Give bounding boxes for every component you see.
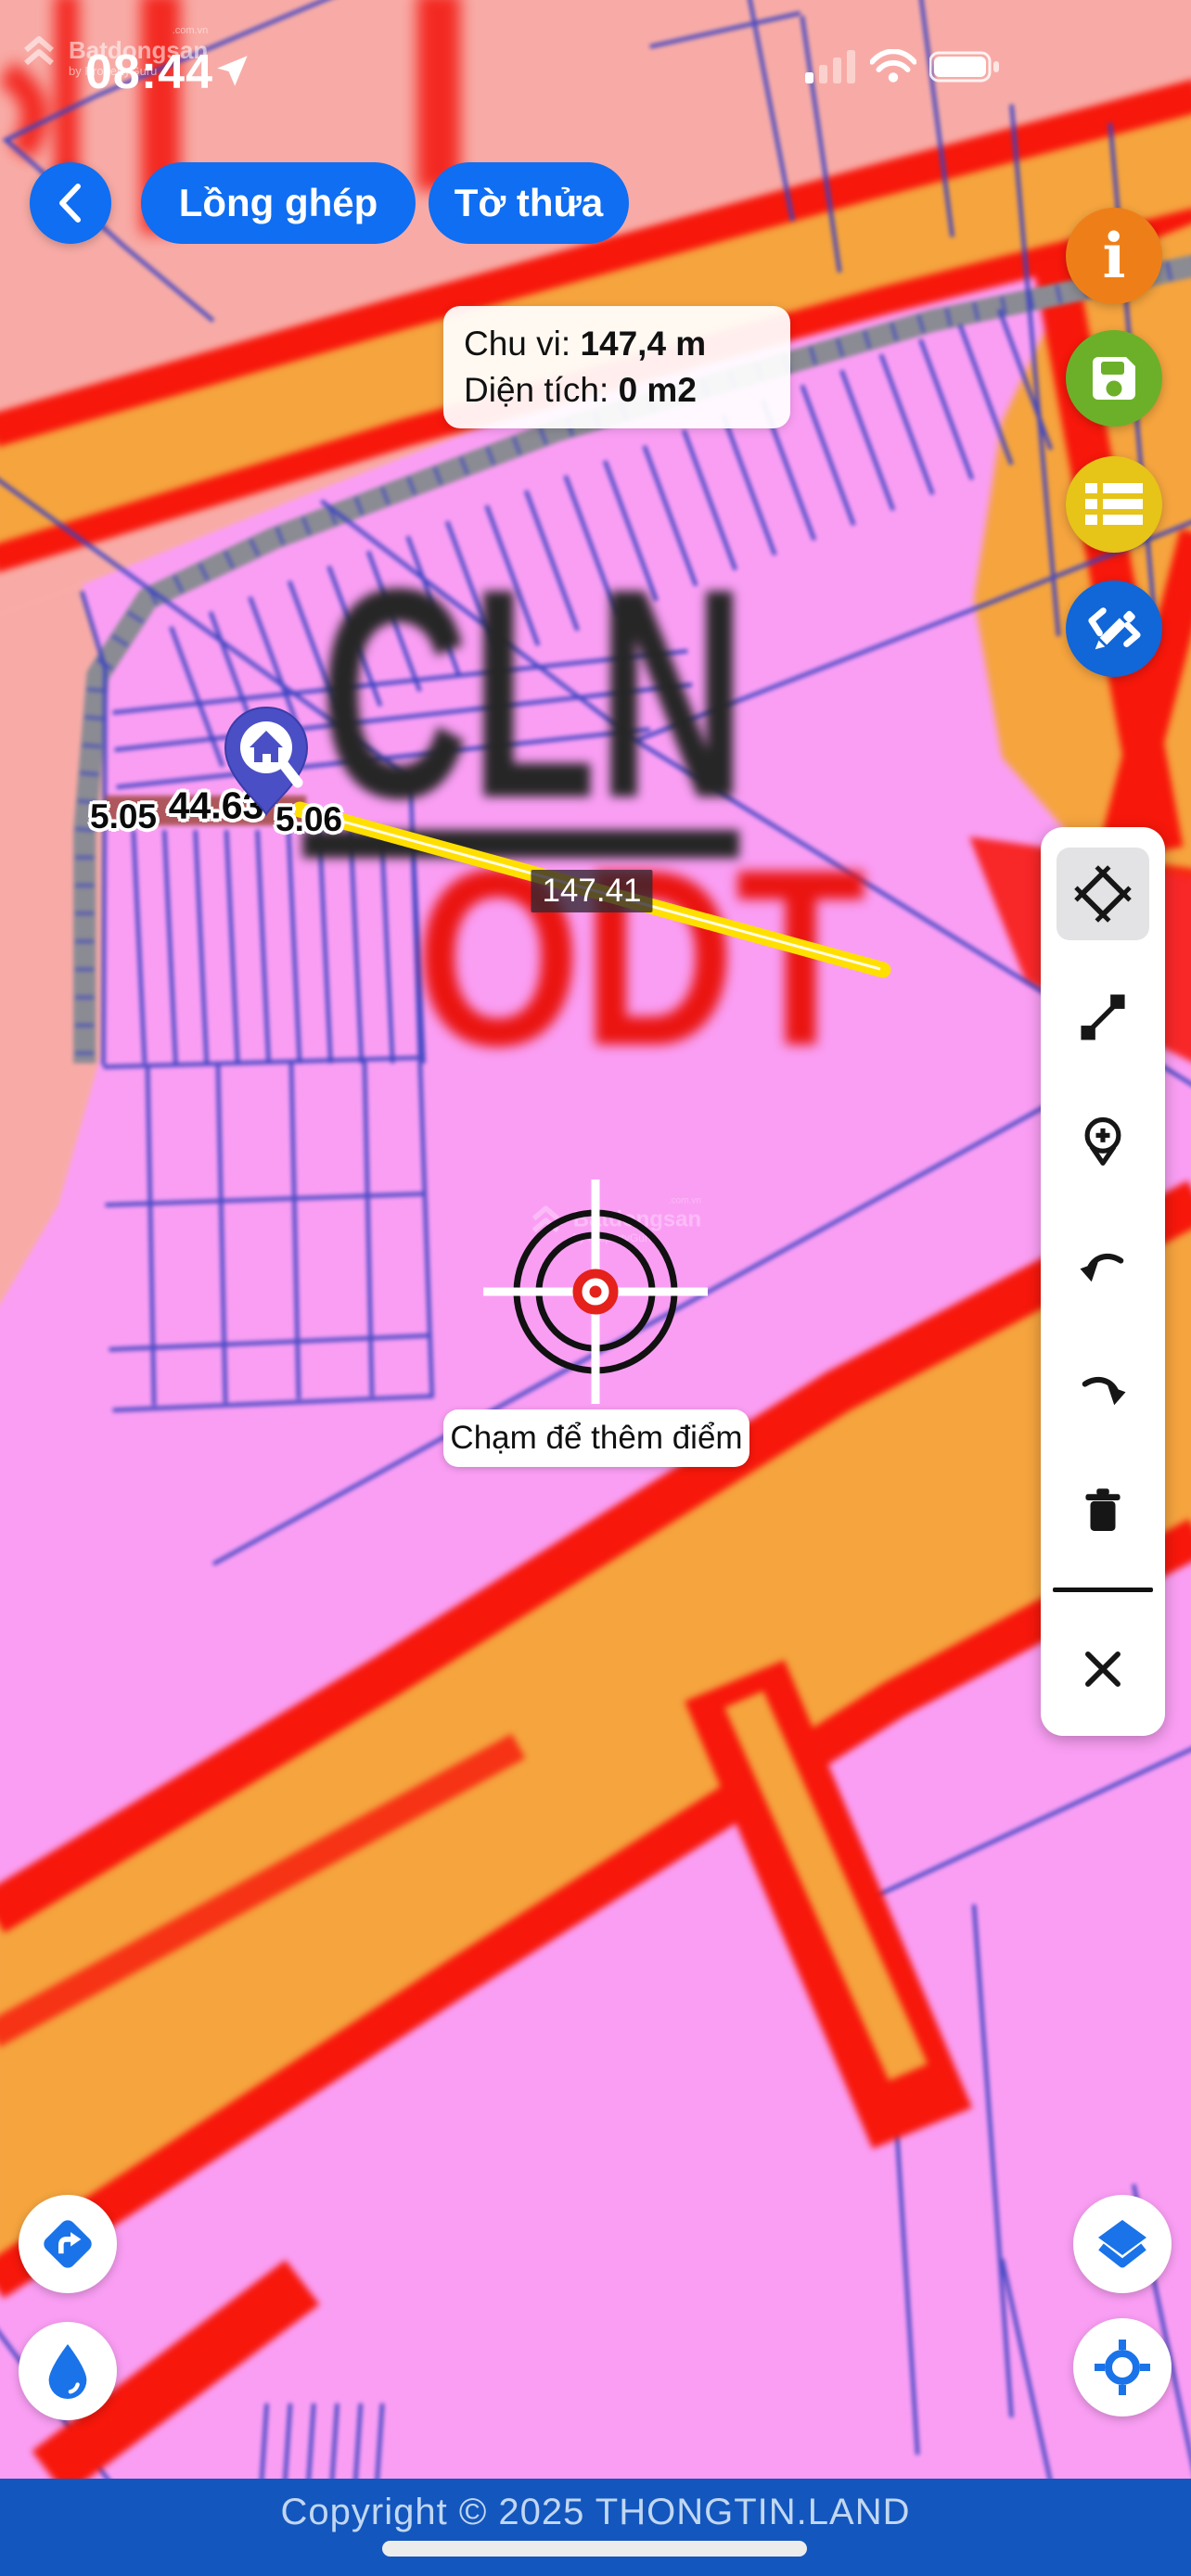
directions-button[interactable] (19, 2195, 117, 2293)
segment-length-label: 5.05 (90, 797, 157, 836)
tool-close[interactable] (1057, 1623, 1149, 1715)
status-icons (805, 48, 1002, 85)
save-button[interactable] (1066, 330, 1162, 427)
map-pin-marker[interactable] (223, 707, 310, 816)
measure-tool-panel (1041, 827, 1165, 1736)
tool-undo[interactable] (1057, 1218, 1149, 1310)
home-indicator[interactable] (382, 2541, 807, 2557)
app-screen: CLN ODT .com.vn Batdongsan by PropertyGu… (0, 0, 1191, 2576)
battery-icon (929, 48, 1002, 85)
overlay-mode-button[interactable]: Lồng ghép (141, 162, 416, 244)
trash-icon (1078, 1484, 1128, 1537)
line-measure-icon (1076, 990, 1130, 1044)
locate-me-button[interactable] (1073, 2318, 1172, 2417)
draw-edit-button[interactable] (1066, 580, 1162, 677)
layers-icon (1093, 2216, 1152, 2272)
area-label: Diện tích: (464, 371, 619, 409)
zone-label-odt: ODT (416, 816, 866, 1098)
tool-area-measure[interactable] (1057, 848, 1149, 940)
list-icon (1085, 481, 1143, 528)
measurement-info-card: Chu vi: 147,4 m Diện tích: 0 m2 (443, 306, 790, 428)
undo-icon (1075, 1238, 1131, 1290)
copyright-text: Copyright © 2025 THONGTIN.LAND (0, 2492, 1191, 2533)
area-measure-icon (1074, 865, 1132, 923)
tool-line-measure[interactable] (1057, 971, 1149, 1064)
perimeter-label: Chu vi: (464, 325, 580, 363)
water-layer-button[interactable] (19, 2322, 117, 2420)
gps-locate-icon (1093, 2338, 1152, 2397)
chevron-left-icon (50, 179, 91, 227)
back-button[interactable] (30, 162, 111, 244)
wifi-icon (870, 49, 916, 84)
tool-add-point[interactable] (1057, 1094, 1149, 1187)
draw-pencil-icon (1085, 600, 1143, 657)
info-icon: i (1102, 225, 1125, 287)
total-length-label: 147.41 (531, 870, 652, 912)
cellular-signal-icon (805, 48, 857, 85)
redo-icon (1075, 1361, 1131, 1413)
parcel-sheet-button[interactable]: Tờ thửa (429, 162, 629, 244)
water-drop-icon (39, 2340, 96, 2402)
info-button[interactable]: i (1066, 208, 1162, 304)
list-button[interactable] (1066, 456, 1162, 553)
status-time: 08:44 (85, 45, 213, 100)
tool-delete[interactable] (1057, 1464, 1149, 1557)
add-location-icon (1075, 1112, 1131, 1169)
tool-panel-divider (1053, 1588, 1153, 1592)
location-services-icon (215, 54, 250, 89)
layers-button[interactable] (1073, 2195, 1172, 2293)
tool-redo[interactable] (1057, 1341, 1149, 1434)
zone-label-cln: CLN (319, 528, 747, 861)
save-floppy-icon (1087, 351, 1141, 405)
close-icon (1080, 1646, 1126, 1692)
area-value: 0 m2 (619, 371, 697, 409)
tap-to-add-point-hint: Chạm để thêm điểm (443, 1409, 749, 1467)
perimeter-value: 147,4 m (580, 325, 706, 363)
diamond-turn-right-icon (33, 2210, 102, 2278)
footer-bar: Copyright © 2025 THONGTIN.LAND (0, 2479, 1191, 2576)
